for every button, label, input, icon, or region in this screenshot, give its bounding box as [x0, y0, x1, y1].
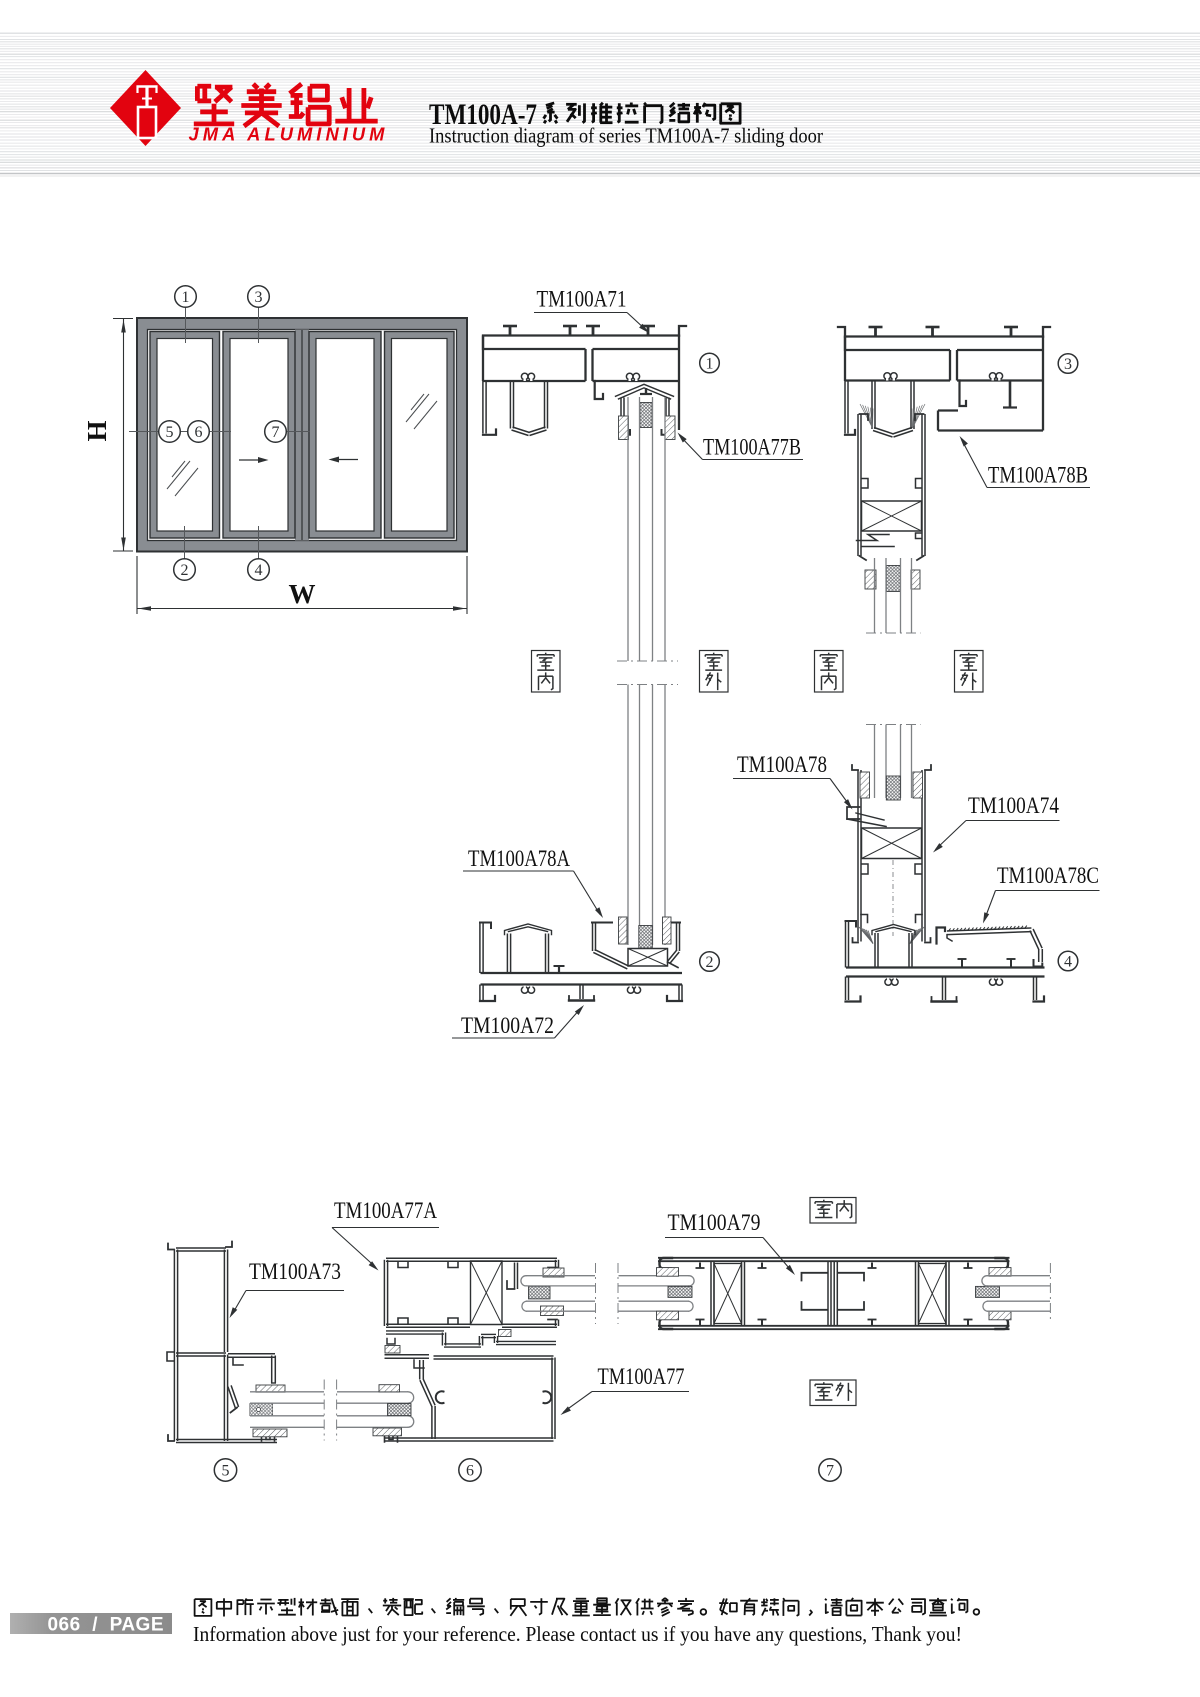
svg-text:TM100A72: TM100A72 [461, 1013, 554, 1039]
svg-text:W: W [289, 579, 316, 609]
svg-text:4: 4 [255, 562, 263, 579]
svg-text:Information above just for you: Information above just for your referenc… [193, 1622, 962, 1646]
svg-text:5: 5 [166, 424, 174, 441]
svg-text:H: H [82, 420, 112, 441]
svg-text:TM100A77B: TM100A77B [703, 435, 801, 461]
svg-text:3: 3 [1064, 356, 1072, 373]
svg-text:TM100A78B: TM100A78B [988, 463, 1088, 489]
svg-text:7: 7 [272, 424, 280, 441]
svg-text:TM100A78A: TM100A78A [468, 846, 570, 872]
svg-text:1: 1 [182, 289, 190, 306]
svg-text:1: 1 [706, 355, 714, 372]
svg-text:TM100A77A: TM100A77A [334, 1198, 437, 1224]
svg-text:5: 5 [222, 1462, 230, 1479]
svg-text:TM100A74: TM100A74 [968, 793, 1059, 819]
svg-text:066 / PAGE: 066 / PAGE [47, 1615, 164, 1636]
svg-text:6: 6 [195, 424, 203, 441]
svg-text:3: 3 [255, 289, 263, 306]
svg-text:4: 4 [1064, 953, 1072, 970]
svg-text:2: 2 [706, 954, 714, 971]
svg-text:TM100A77: TM100A77 [598, 1364, 685, 1390]
svg-text:TM100A79: TM100A79 [668, 1210, 761, 1236]
svg-text:TM100A71: TM100A71 [537, 287, 627, 313]
svg-text:TM100A78: TM100A78 [737, 752, 827, 778]
svg-text:2: 2 [181, 562, 189, 579]
svg-text:TM100A78C: TM100A78C [997, 863, 1099, 889]
svg-text:JMA ALUMINIUM: JMA ALUMINIUM [189, 125, 389, 145]
svg-text:Instruction diagram of series: Instruction diagram of series TM100A-7 s… [429, 124, 823, 148]
svg-text:7: 7 [826, 1462, 834, 1479]
svg-text:6: 6 [466, 1462, 474, 1479]
svg-text:TM100A73: TM100A73 [249, 1259, 341, 1285]
